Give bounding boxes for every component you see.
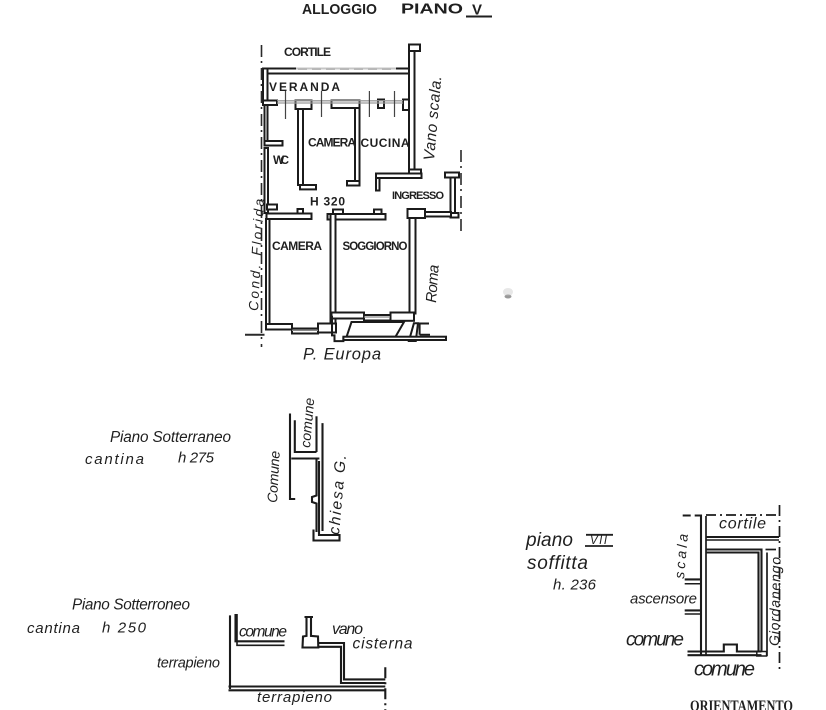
svg-text:CORTILE: CORTILE [284,45,331,59]
svg-text:Roma: Roma [423,264,443,303]
svg-text:SOGGIORNO: SOGGIORNO [343,241,408,253]
svg-text:terrapieno: terrapieno [257,689,332,706]
svg-text:Comune: Comune [264,450,283,503]
svg-text:comune: comune [626,630,684,651]
svg-text:CAMERA: CAMERA [308,136,356,150]
svg-text:ORIENTAMENTO: ORIENTAMENTO [690,698,793,710]
svg-text:H 320: H 320 [310,195,345,209]
svg-text:cisterna: cisterna [353,636,413,653]
svg-text:INGRESSO: INGRESSO [392,190,444,202]
svg-text:h 275: h 275 [178,450,215,467]
svg-text:cantina: cantina [85,451,144,468]
svg-text:PIANO: PIANO [401,1,463,18]
svg-text:Giordanengo: Giordanengo [766,557,784,646]
svg-text:soffitta: soffitta [527,553,588,574]
svg-text:cortile: cortile [719,516,766,533]
svg-text:ascensore: ascensore [630,591,697,608]
svg-text:cantina: cantina [27,620,80,637]
svg-text:Piano Sotterroneo: Piano Sotterroneo [72,597,190,614]
svg-text:P. Europa: P. Europa [303,346,381,364]
svg-text:Piano Sotterraneo: Piano Sotterraneo [110,429,231,446]
svg-text:terrapieno: terrapieno [157,656,220,672]
svg-text:WC: WC [273,153,289,167]
svg-text:comune: comune [694,659,755,681]
svg-text:ALLOGGIO: ALLOGGIO [302,1,377,18]
svg-text:piano: piano [525,530,573,551]
svg-text:CAMERA: CAMERA [272,239,322,253]
svg-text:h 250: h 250 [102,620,147,637]
svg-text:comune: comune [239,624,287,641]
svg-text:h. 236: h. 236 [553,577,597,594]
svg-text:CUCINA: CUCINA [361,136,410,150]
